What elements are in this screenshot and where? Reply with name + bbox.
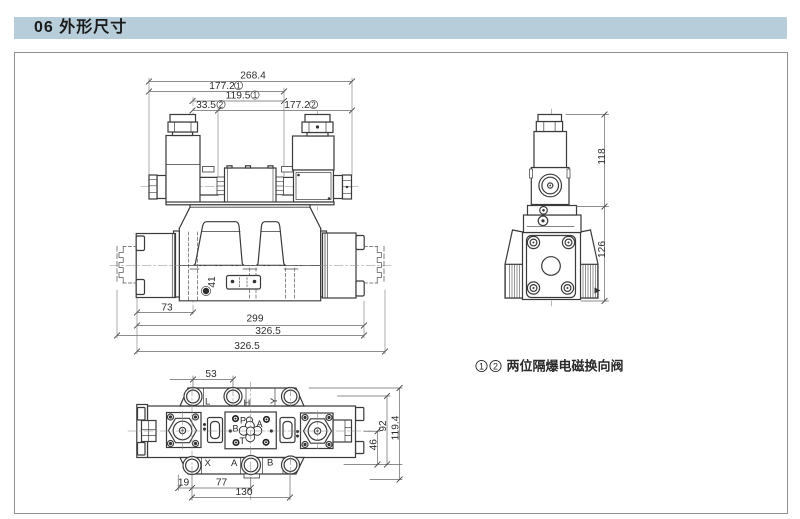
svg-text:41: 41 xyxy=(207,276,218,288)
svg-text:X: X xyxy=(205,458,212,469)
svg-text:H: H xyxy=(244,398,251,409)
svg-text:77: 77 xyxy=(216,478,228,489)
svg-text:2: 2 xyxy=(311,100,316,109)
svg-text:126: 126 xyxy=(597,241,608,258)
svg-text:130: 130 xyxy=(236,487,253,498)
svg-text:53: 53 xyxy=(205,369,217,380)
svg-text:2: 2 xyxy=(219,100,224,109)
svg-text:119.5: 119.5 xyxy=(226,91,251,102)
svg-text:B: B xyxy=(233,424,239,434)
svg-text:Y: Y xyxy=(269,397,280,404)
svg-text:299: 299 xyxy=(247,314,264,325)
svg-text:B: B xyxy=(267,458,273,469)
svg-text:326.5: 326.5 xyxy=(234,341,260,352)
svg-text:A: A xyxy=(231,458,238,469)
svg-text:118: 118 xyxy=(597,148,608,165)
svg-text:1: 1 xyxy=(479,362,484,372)
svg-text:73: 73 xyxy=(161,303,173,314)
svg-text:A: A xyxy=(257,419,263,429)
svg-text:92: 92 xyxy=(378,420,389,432)
svg-text:L: L xyxy=(205,397,210,408)
svg-text:2: 2 xyxy=(493,362,498,372)
svg-text:T: T xyxy=(240,436,246,446)
svg-text:1: 1 xyxy=(236,81,241,90)
svg-text:两位隔爆电磁换向阀: 两位隔爆电磁换向阀 xyxy=(507,359,624,374)
svg-text:46: 46 xyxy=(368,439,379,451)
svg-text:177.2: 177.2 xyxy=(284,100,310,111)
svg-text:33.5: 33.5 xyxy=(196,100,216,111)
svg-text:1: 1 xyxy=(253,91,258,100)
svg-text:326.5: 326.5 xyxy=(255,326,281,337)
svg-text:19: 19 xyxy=(178,478,190,489)
svg-text:119.4: 119.4 xyxy=(391,415,402,440)
svg-text:268.4: 268.4 xyxy=(240,71,266,82)
svg-text:P: P xyxy=(240,416,246,426)
